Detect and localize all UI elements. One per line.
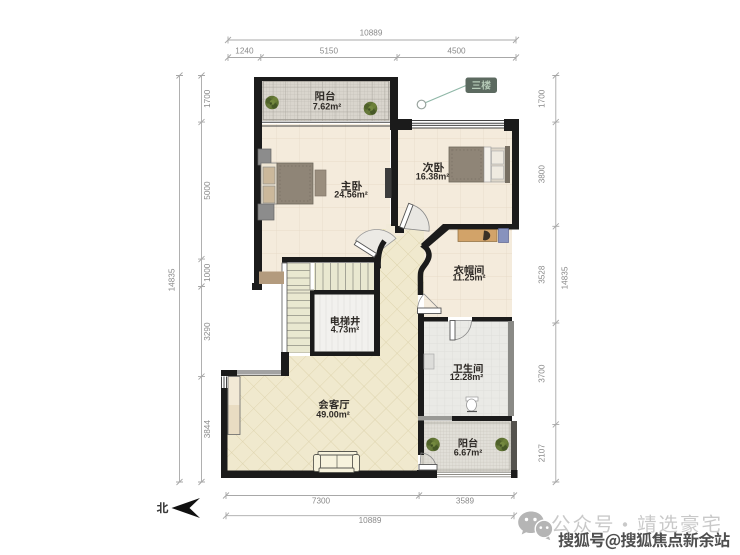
svg-text:16.38m²: 16.38m²: [416, 172, 450, 182]
svg-text:11.25m²: 11.25m²: [452, 273, 485, 283]
svg-text:3700: 3700: [538, 364, 547, 383]
svg-text:5000: 5000: [203, 181, 212, 200]
svg-text:7300: 7300: [312, 497, 331, 506]
svg-text:24.56m²: 24.56m²: [334, 190, 368, 200]
svg-text:3844: 3844: [203, 420, 212, 439]
svg-text:6.67m²: 6.67m²: [454, 448, 483, 458]
svg-text:10889: 10889: [360, 29, 383, 38]
svg-text:4.73m²: 4.73m²: [331, 325, 360, 335]
svg-text:10889: 10889: [359, 516, 382, 525]
svg-text:14835: 14835: [561, 266, 570, 289]
svg-text:12.28m²: 12.28m²: [450, 372, 484, 382]
svg-text:49.00m²: 49.00m²: [316, 410, 350, 420]
svg-text:1700: 1700: [203, 89, 212, 108]
svg-text:7.62m²: 7.62m²: [313, 102, 342, 112]
svg-text:1240: 1240: [235, 47, 254, 56]
svg-text:1000: 1000: [203, 263, 212, 282]
svg-text:3290: 3290: [203, 322, 212, 341]
svg-text:1700: 1700: [538, 89, 547, 108]
svg-text:3589: 3589: [456, 497, 475, 506]
svg-text:5150: 5150: [320, 47, 339, 56]
svg-text:2107: 2107: [538, 444, 547, 463]
svg-text:3528: 3528: [538, 265, 547, 284]
svg-text:14835: 14835: [168, 268, 177, 291]
svg-text:4500: 4500: [447, 47, 466, 56]
svg-text:3800: 3800: [538, 165, 547, 184]
